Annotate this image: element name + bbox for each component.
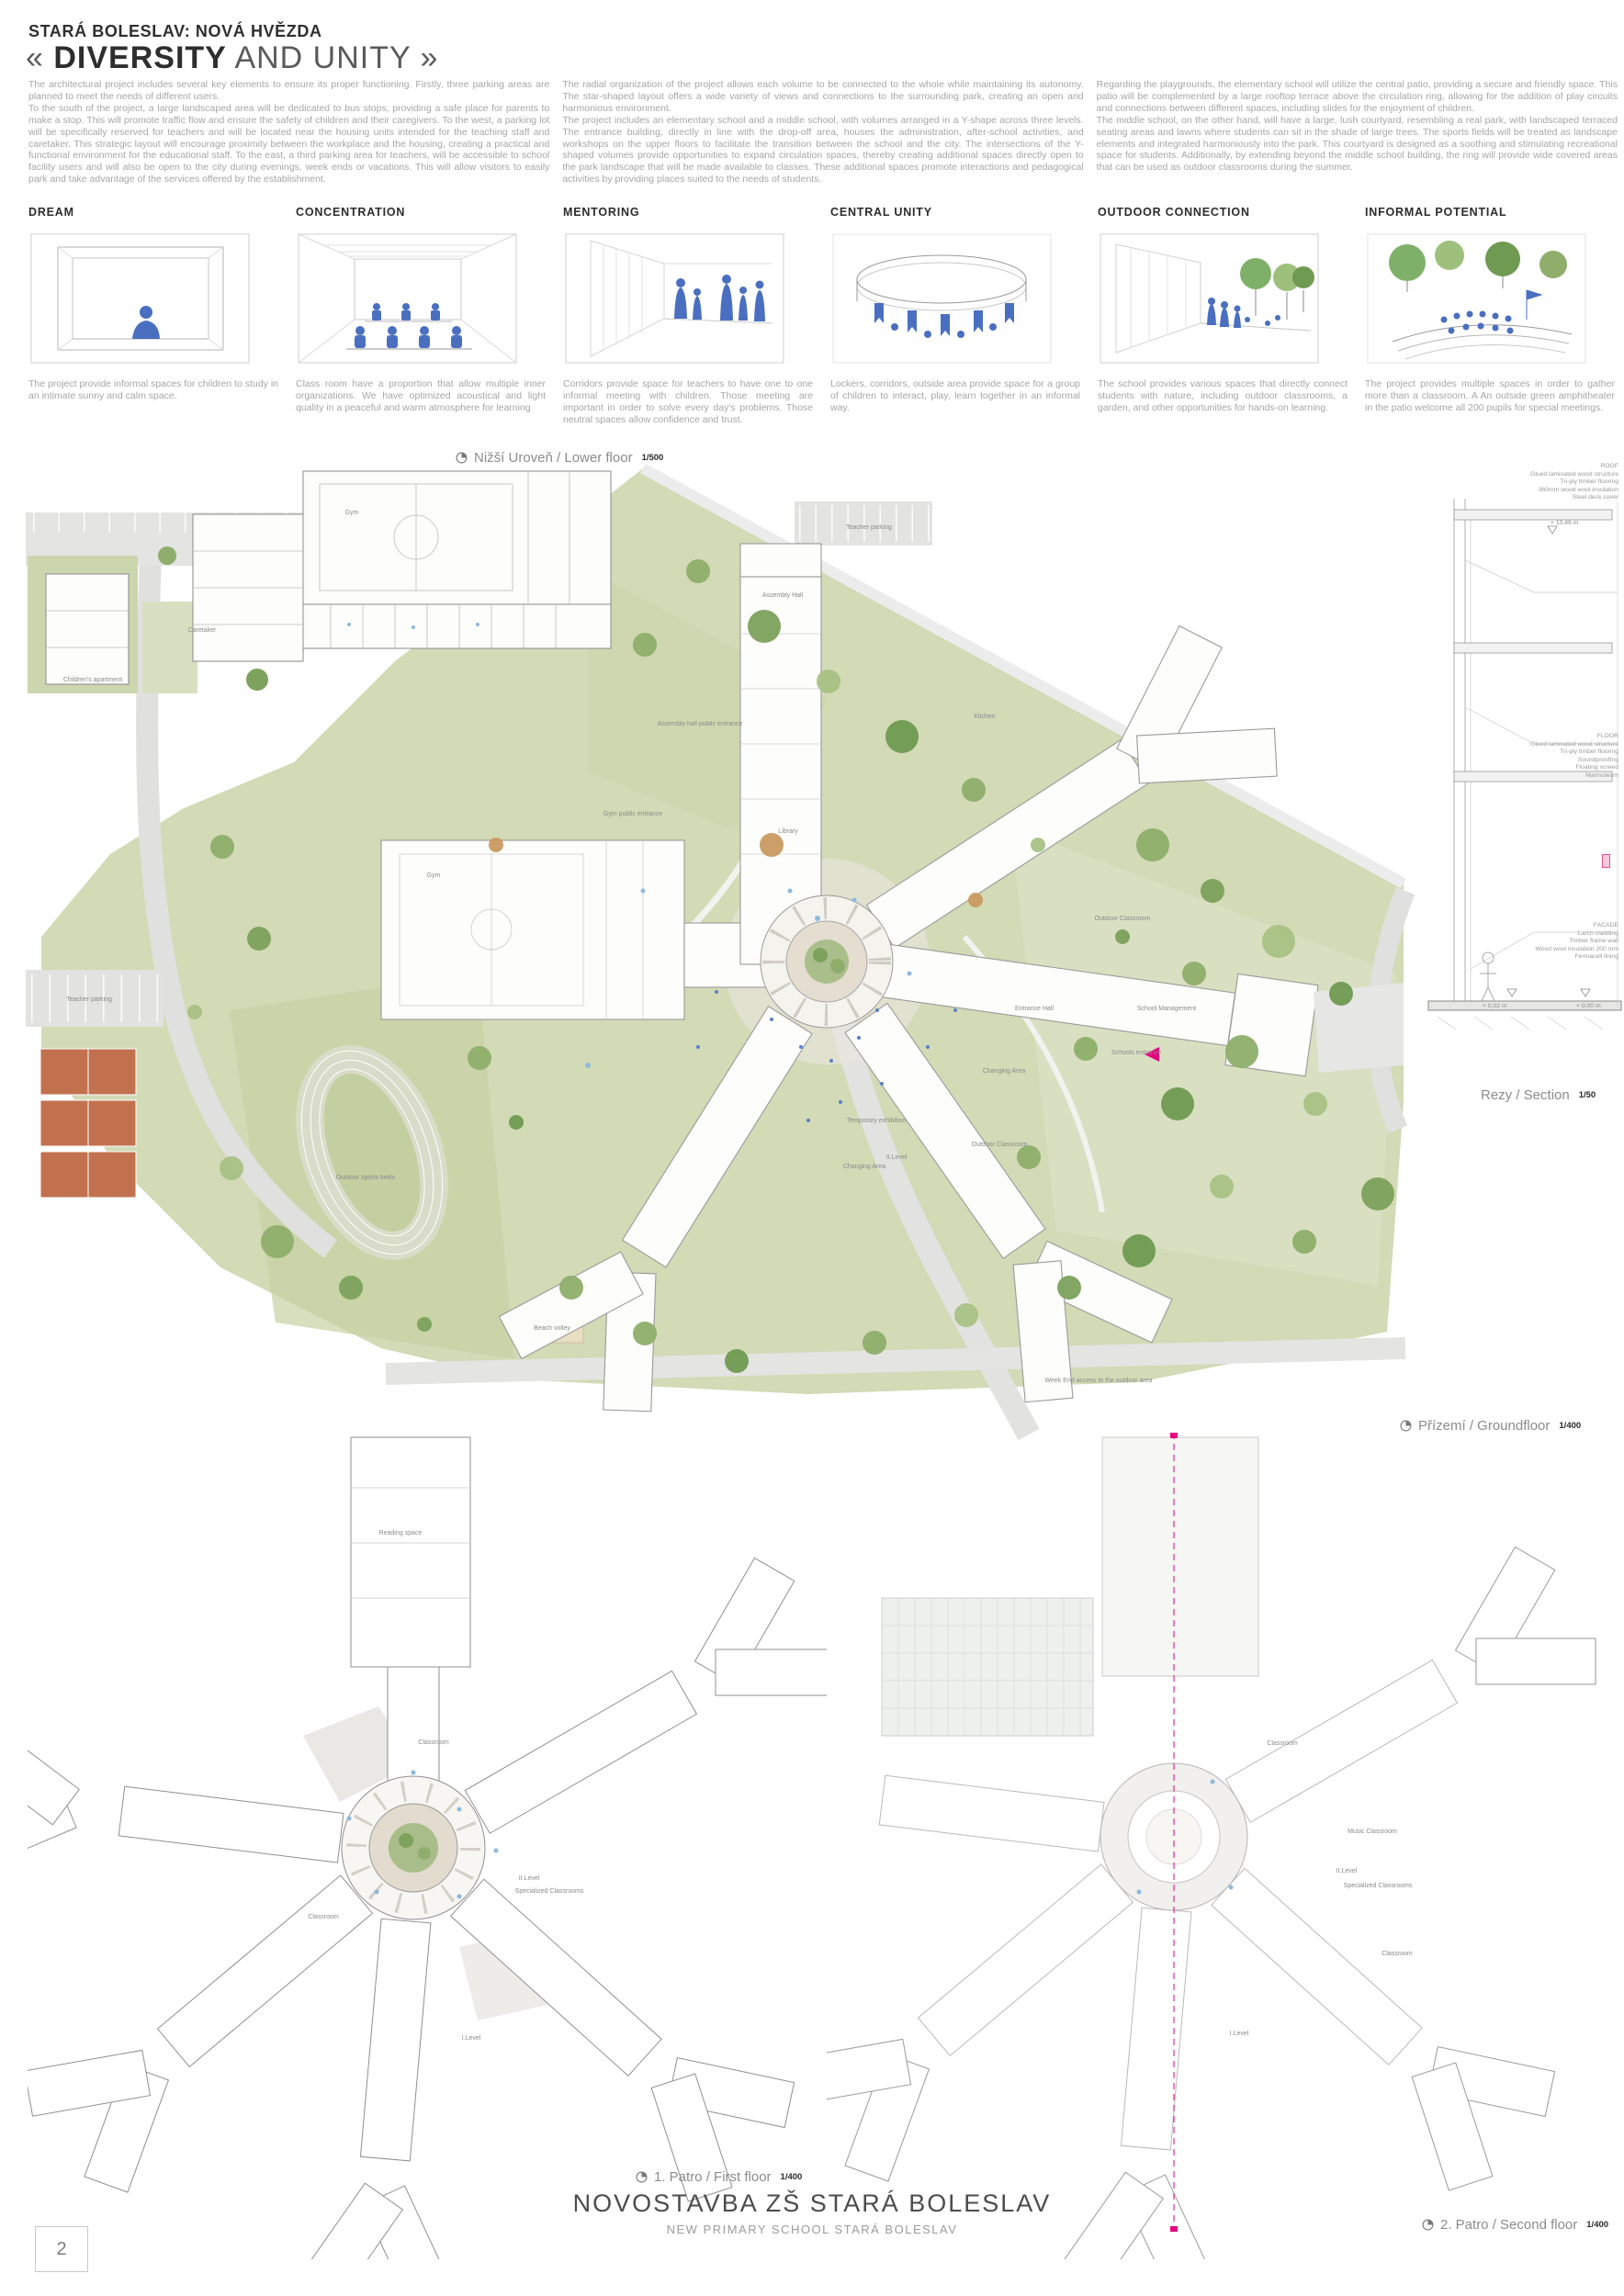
mentoring-diagram <box>563 231 786 366</box>
board-subtitle: NEW PRIMARY SCHOOL STARÁ BOLESLAV <box>0 2223 1624 2236</box>
plan-annotation: Changing Area <box>983 1068 1025 1075</box>
page-edge-mark <box>1602 854 1610 868</box>
intro-col-2: The radial organization of the project a… <box>562 79 1083 186</box>
plan-annotation: Outdoor Classroom <box>972 1142 1028 1149</box>
intro-paragraph: Regarding the playgrounds, the elementar… <box>1097 79 1618 115</box>
plan-annotation: I.Level <box>1230 2031 1249 2038</box>
plan-annotation: Gym <box>427 872 441 880</box>
plan-annotation: Changing Area <box>843 1164 885 1171</box>
north-icon <box>1400 1420 1412 1432</box>
level-mark: + 0,00 m <box>1576 1003 1601 1009</box>
outdoor-connection-diagram <box>1098 231 1321 366</box>
concept-caption: The project provides multiple spaces in … <box>1365 378 1615 414</box>
concept-caption: Lockers, corridors, outside area provide… <box>830 378 1080 414</box>
concept-label: MENTORING <box>563 206 815 219</box>
first-floor-drawing <box>28 1433 827 2259</box>
concept-outdoor-connection: OUTDOOR CONNECTION <box>1098 206 1349 426</box>
second-floor-drawing <box>827 1433 1624 2259</box>
concentration-diagram <box>296 231 519 366</box>
plan-annotation: II.Level <box>1336 1868 1358 1875</box>
section-note-floor: FLOORGlued laminated wood structure Tri-… <box>1415 733 1618 781</box>
plan-annotation: Teacher parking <box>66 996 112 1004</box>
plan-annotation: Temporary exhibition <box>847 1118 907 1125</box>
plan-annotation: Caretaker <box>188 627 217 635</box>
plan-annotation: I.Level <box>462 2035 481 2043</box>
plan-annotation: Teacher parking <box>846 524 892 532</box>
plan-annotation: Classroom <box>1267 1740 1297 1748</box>
title-suffix: AND UNITY » <box>234 40 438 75</box>
first-floor-label: 1. Patro / First floor1/400 <box>636 2169 802 2185</box>
plan-annotation: Children's apartment <box>63 677 122 684</box>
plan-annotation: Assembly Hall <box>762 592 803 600</box>
level-mark: + 10,46 m <box>1551 520 1578 526</box>
plan-annotation: II.Level <box>519 1875 540 1883</box>
plan-annotation: Beach volley <box>534 1325 570 1333</box>
intro-col-1: The architectural project includes sever… <box>28 79 549 186</box>
intro-paragraph: The architectural project includes sever… <box>28 79 549 103</box>
plan-annotation: Specialized Classrooms <box>1344 1883 1413 1890</box>
main-title: « DIVERSITY AND UNITY » <box>26 40 438 76</box>
concept-label: DREAM <box>28 206 280 219</box>
informal-potential-diagram <box>1365 231 1588 366</box>
project-title: STARÁ BOLESLAV: NOVÁ HVĚZDA <box>28 22 322 41</box>
plan-annotation: Music Classroom <box>1348 1829 1397 1836</box>
concept-caption: Corridors provide space for teachers to … <box>563 378 813 426</box>
concept-label: OUTDOOR CONNECTION <box>1098 206 1349 219</box>
plan-annotation: Classroom <box>308 1914 338 1921</box>
plan-annotation: Gym <box>345 510 359 517</box>
page-number: 2 <box>35 2226 88 2272</box>
concept-caption: Class room have a proportion that allow … <box>296 378 546 414</box>
presentation-board: STARÁ BOLESLAV: NOVÁ HVĚZDA « DIVERSITY … <box>0 0 1624 2296</box>
concept-dream: DREAM The project provide informal space… <box>28 206 280 426</box>
concept-label: CONCENTRATION <box>296 206 547 219</box>
intro-col-3: Regarding the playgrounds, the elementar… <box>1097 79 1618 186</box>
plan-annotation: Specialized Classrooms <box>515 1888 584 1896</box>
plan-annotation: Reading space <box>379 1530 423 1537</box>
plan-annotation: Classroom <box>418 1739 448 1747</box>
plan-annotation: Assembly hall public entrance <box>658 721 743 728</box>
concept-label: CENTRAL UNITY <box>830 206 1082 219</box>
intro-paragraph: The radial organization of the project a… <box>562 79 1083 115</box>
section-note-facade: FACADELarch cladding Timber frame wallWo… <box>1415 922 1618 962</box>
level-mark: + 0,02 m <box>1483 1003 1507 1009</box>
plan-annotation: Outdoor Classroom <box>1095 916 1151 923</box>
intro-paragraph: To the south of the project, a large lan… <box>28 103 549 186</box>
section-note-roof: ROOFGlued laminated wood structure Tri-p… <box>1415 463 1618 502</box>
north-icon <box>456 452 468 464</box>
plan-annotation: Entrance Hall <box>1015 1006 1054 1013</box>
dream-diagram <box>28 231 252 366</box>
plan-annotation: Schools entrance <box>1111 1050 1161 1057</box>
groundfloor-label: Přízemí / Groundfloor1/400 <box>1400 1418 1581 1434</box>
plan-annotation: Classroom <box>1382 1951 1412 1958</box>
board-title: NOVOSTAVBA ZŠ STARÁ BOLESLAV <box>0 2189 1624 2218</box>
plan-annotation: Gym public entrance <box>603 811 662 818</box>
concept-mentoring: MENTORING Corridors provide space for te… <box>563 206 815 426</box>
intro-columns: The architectural project includes sever… <box>28 79 1618 186</box>
intro-paragraph: The middle school, on the other hand, wi… <box>1097 115 1618 174</box>
concept-row: DREAM The project provide informal space… <box>28 206 1618 426</box>
concept-caption: The project provide informal spaces for … <box>28 378 278 402</box>
section-label: Rezy / Section1/50 <box>1481 1087 1596 1103</box>
plan-annotation: Week End access to the outdoor area <box>1045 1378 1153 1385</box>
plan-annotation: Outdoor sports fields <box>336 1175 396 1182</box>
section-drawing <box>1419 473 1624 1107</box>
intro-paragraph: The project includes an elementary schoo… <box>562 115 1083 186</box>
title-bold: DIVERSITY <box>53 40 226 75</box>
north-icon <box>636 2171 648 2183</box>
concept-concentration: CONCENTRATION <box>296 206 547 426</box>
title-prefix: « <box>26 40 44 75</box>
concept-caption: The school provides various spaces that … <box>1098 378 1348 414</box>
plan-annotation: II.Level <box>886 1154 908 1162</box>
plan-annotation: Library <box>778 828 797 836</box>
plan-annotation: School Management <box>1137 1006 1196 1013</box>
lower-floor-drawing <box>28 464 643 707</box>
concept-informal-potential: INFORMAL POTENTIAL The project pr <box>1365 206 1617 426</box>
concept-label: INFORMAL POTENTIAL <box>1365 206 1617 219</box>
plan-annotation: Kitchen <box>974 714 995 721</box>
lower-floor-label: Nižší Uroveň / Lower floor1/500 <box>456 450 663 466</box>
central-unity-diagram <box>830 231 1054 366</box>
concept-central-unity: CENTRAL UNITY Lockers, corridors, outsid <box>830 206 1082 426</box>
